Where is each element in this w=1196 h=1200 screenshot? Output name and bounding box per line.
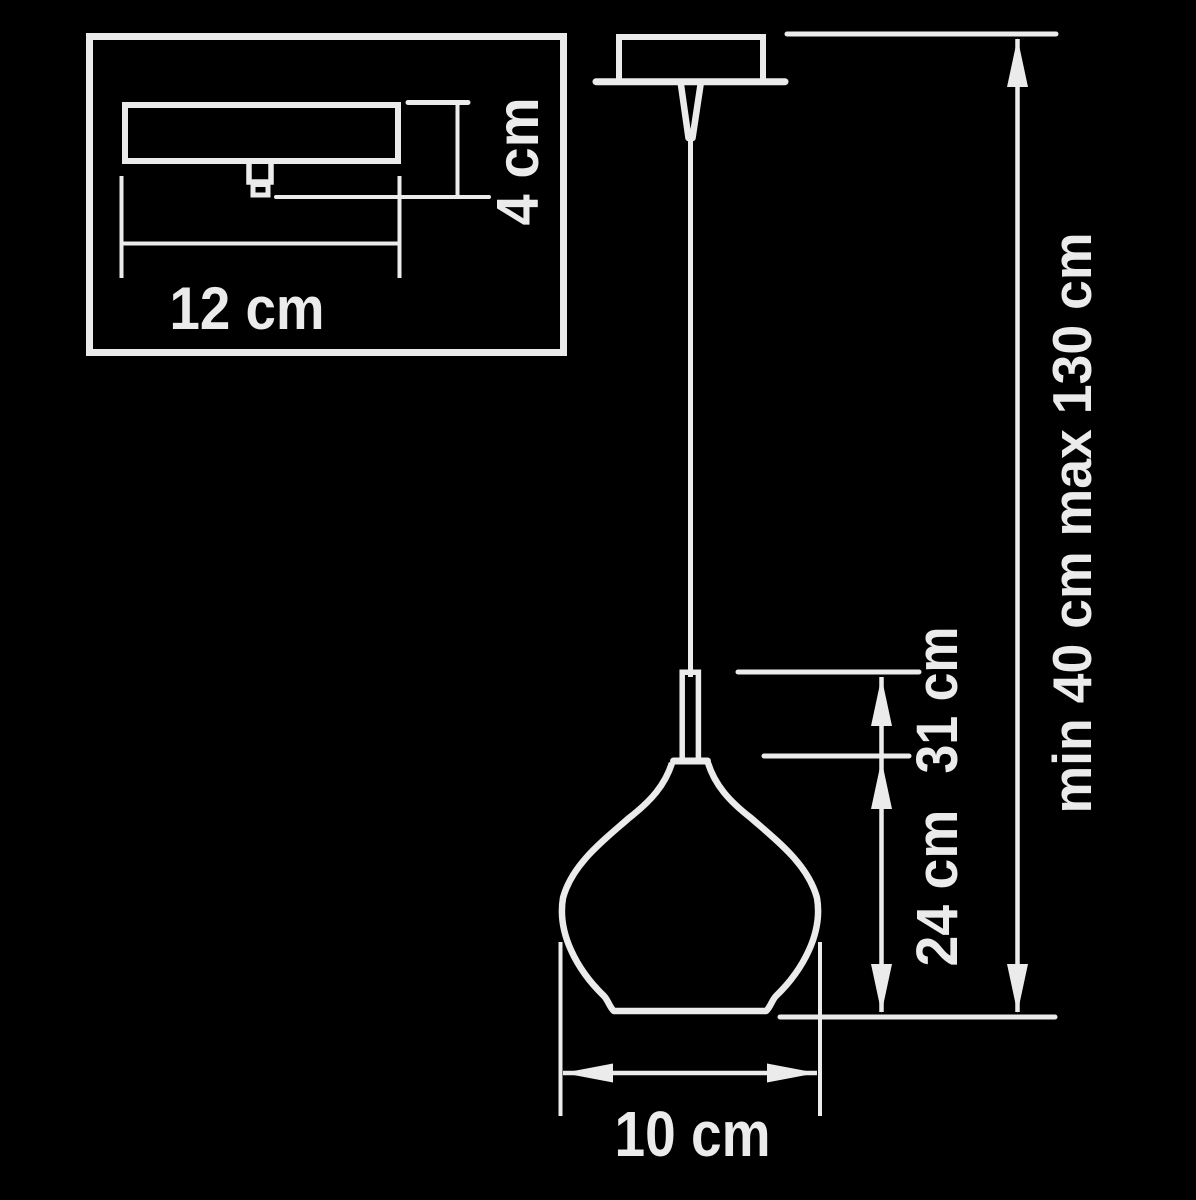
svg-text:4 cm: 4 cm bbox=[485, 98, 551, 226]
svg-text:31 cm: 31 cm bbox=[905, 627, 970, 774]
svg-text:min 40 cm max 130 cm: min 40 cm max 130 cm bbox=[1041, 233, 1103, 814]
svg-text:12 cm: 12 cm bbox=[170, 275, 325, 342]
svg-text:24 cm: 24 cm bbox=[905, 810, 970, 967]
svg-text:10 cm: 10 cm bbox=[615, 1098, 771, 1170]
